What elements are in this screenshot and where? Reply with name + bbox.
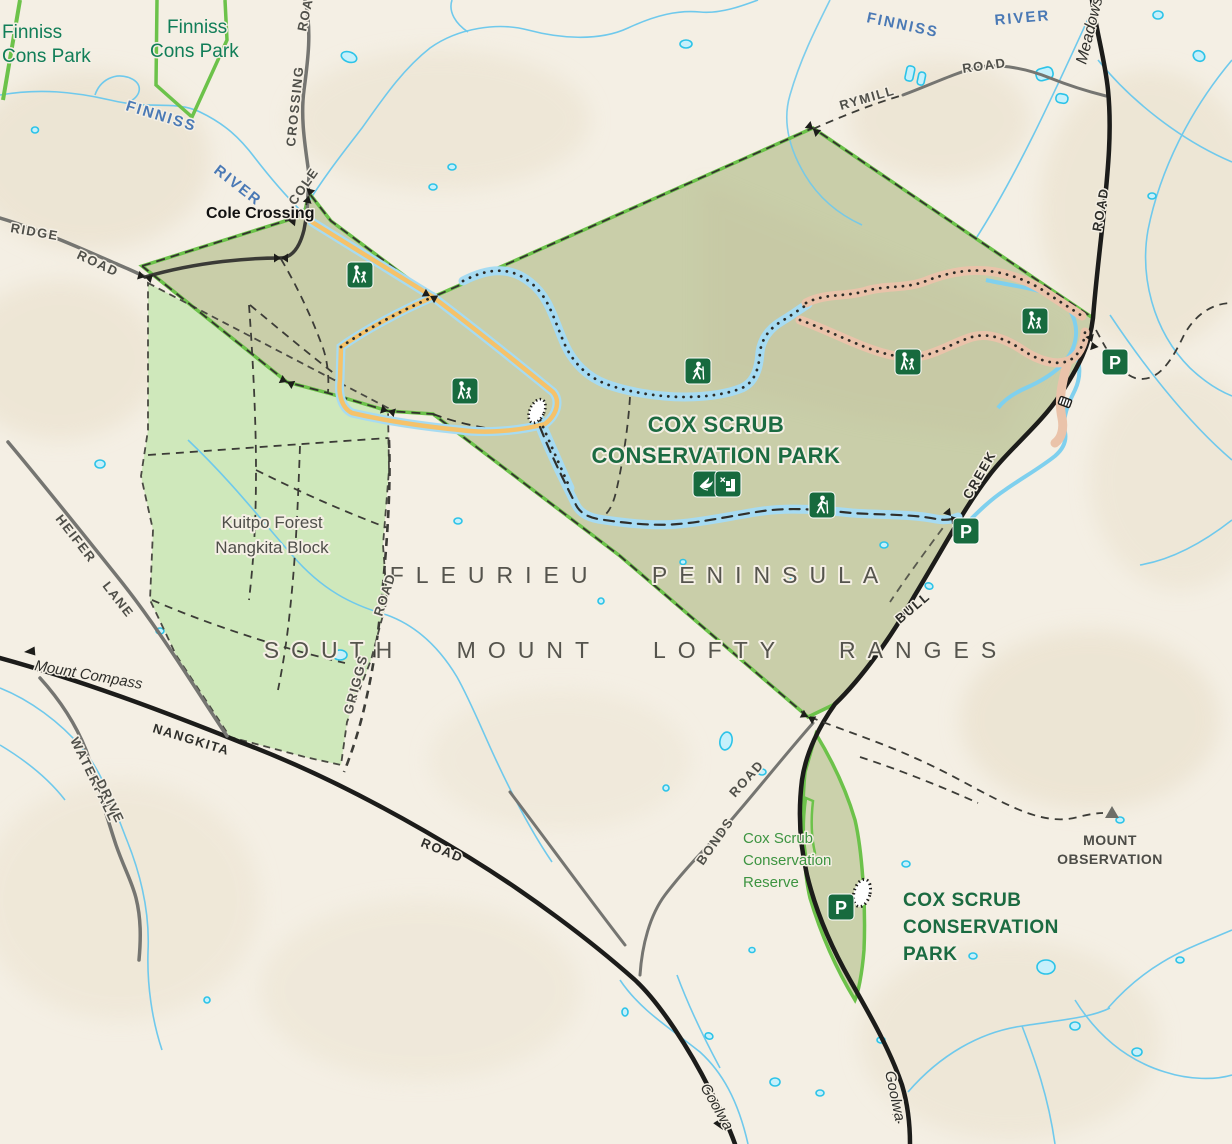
svg-text:CONSERVATION PARK: CONSERVATION PARK — [592, 443, 841, 468]
svg-text:Cons Park: Cons Park — [2, 46, 91, 67]
svg-text:CONSERVATION: CONSERVATION — [903, 917, 1059, 938]
forest-label-kuitpo: Kuitpo Forest — [221, 513, 322, 532]
map-canvas[interactable]: P P P Finniss Cons Park Finniss Cons Par… — [0, 0, 1232, 1144]
place-label-cole-crossing: Cole Crossing — [206, 205, 314, 222]
svg-text:P: P — [835, 898, 847, 918]
svg-text:Conservation: Conservation — [743, 852, 831, 869]
walk-with-child-icon — [452, 378, 478, 404]
hiker-icon — [685, 358, 711, 384]
mount-observation-label: MOUNT — [1083, 832, 1137, 848]
svg-text:P: P — [960, 522, 972, 542]
reserve-label: Cox Scrub — [743, 830, 813, 847]
park-south-label: COX SCRUB — [903, 890, 1022, 911]
walk-with-child-icon — [1022, 308, 1048, 334]
svg-text:Nangkita Block: Nangkita Block — [215, 538, 329, 557]
svg-text:Reserve: Reserve — [743, 874, 799, 891]
svg-text:PARK: PARK — [903, 944, 957, 965]
region-label-ranges: SOUTH MOUNT LOFTY RANGES — [264, 637, 1008, 663]
svg-text:P: P — [1109, 353, 1121, 373]
park-label-finniss-n: Finniss — [167, 17, 227, 38]
park-label-finniss-nw: Finniss — [2, 22, 62, 43]
hiker-icon — [809, 492, 835, 518]
parking-icon: P — [953, 518, 979, 544]
park-title: COX SCRUB — [648, 412, 785, 437]
activity-icon — [715, 471, 741, 497]
walk-with-child-icon — [895, 349, 921, 375]
svg-text:OBSERVATION: OBSERVATION — [1057, 851, 1163, 867]
svg-text:Cons Park: Cons Park — [150, 41, 239, 62]
region-label-fleurieu: FLEURIEU PENINSULA — [390, 562, 891, 588]
park-map-svg: P P P Finniss Cons Park Finniss Cons Par… — [0, 0, 1232, 1144]
walk-with-child-icon — [347, 262, 373, 288]
parking-icon: P — [1102, 349, 1128, 375]
parking-icon: P — [828, 894, 854, 920]
